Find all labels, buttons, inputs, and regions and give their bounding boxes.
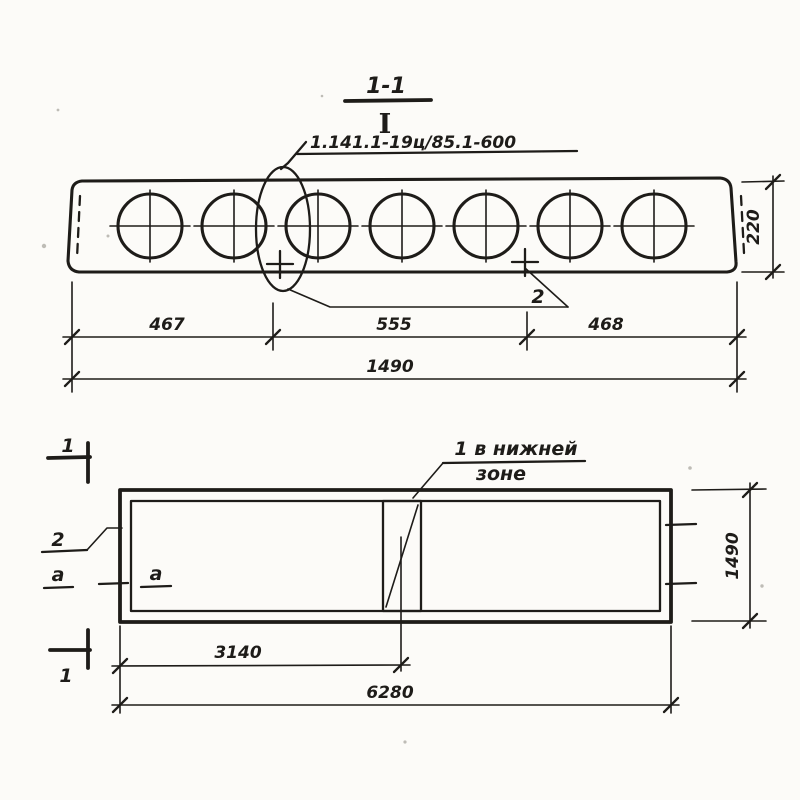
note-line1: 1 в нижней	[454, 438, 577, 460]
height-dimension: 220	[742, 175, 784, 279]
left-keyway-dashed	[77, 196, 80, 258]
plan-view: 1 1 2 a a	[42, 435, 766, 713]
dim-467: 467	[148, 315, 185, 335]
dim-6280: 6280	[366, 683, 413, 703]
hollow-core-circle	[530, 190, 610, 262]
hollow-core-circle	[614, 190, 694, 262]
dim-3140: 3140	[214, 643, 261, 663]
blueprint-page: 1-1 I 1.141.1-19ц/85.1-600	[0, 0, 800, 800]
plan-width-dimension: 1490	[692, 483, 766, 628]
hollow-core-circle	[278, 190, 358, 262]
series-leader	[281, 142, 306, 169]
hollow-core-circle	[362, 190, 442, 262]
section-view-1-1: 1-1 I 1.141.1-19ц/85.1-600	[63, 74, 784, 392]
technical-drawing: 1-1 I 1.141.1-19ц/85.1-600	[0, 0, 800, 800]
hollow-core-circle	[110, 190, 190, 262]
section-letter-a-inner: a	[150, 563, 163, 585]
rebar-plus-mark	[267, 251, 293, 278]
section-title-underline	[345, 100, 431, 101]
section-title: 1-1	[366, 74, 406, 99]
section-cut-marker-1-bottom: 1	[50, 630, 90, 687]
section-dimensions: 467 555 468 1490	[63, 282, 746, 392]
section-trace-a-a: a a	[44, 563, 696, 588]
edge-callout-label: 2	[51, 529, 64, 551]
plan-bottom-dimensions: 3140 6280	[112, 626, 679, 713]
dimension-line	[112, 665, 410, 666]
section-marker-label: 1	[61, 435, 74, 457]
section-cut-marker-1-top: 1	[48, 435, 90, 482]
dim-220-height: 220	[744, 209, 764, 245]
hollow-core-circle	[194, 190, 274, 262]
dim-1490-length: 1490	[366, 357, 413, 377]
hollow-core-circle	[446, 190, 526, 262]
plan-outline-inner	[131, 501, 660, 611]
plan-outline-outer	[120, 490, 671, 622]
section-marker-label: 1	[59, 665, 72, 687]
section-letter-a-left: a	[52, 564, 65, 586]
edge-callout-2: 2	[42, 528, 122, 552]
dim-555: 555	[376, 315, 412, 335]
hollow-cores	[110, 190, 694, 262]
callout-2-label: 2	[531, 286, 544, 308]
dim-468: 468	[587, 315, 624, 335]
dim-1490-width: 1490	[723, 532, 743, 579]
series-label: 1.141.1-19ц/85.1-600	[310, 133, 516, 153]
note-line2: зоне	[475, 463, 526, 485]
embedded-detail	[383, 501, 421, 611]
